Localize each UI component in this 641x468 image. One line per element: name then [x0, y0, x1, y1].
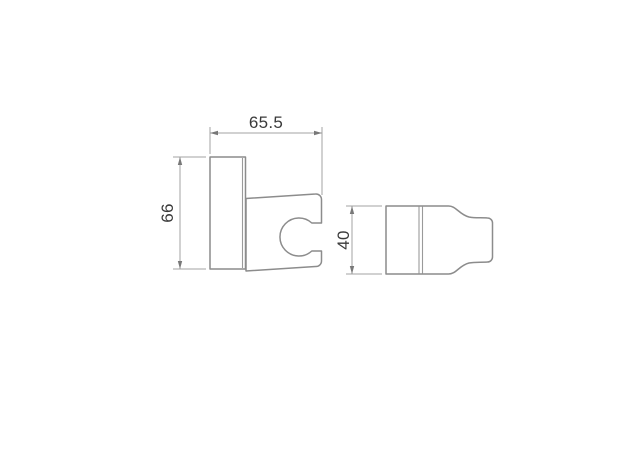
- dimension-arrow-bottom: [178, 261, 182, 269]
- front-view: [210, 157, 322, 271]
- dimension-arrow-right: [314, 131, 322, 135]
- dimension-arrow-bottom: [350, 266, 354, 274]
- dimension-depth: 40: [334, 206, 382, 274]
- dimension-depth-label: 40: [334, 230, 353, 250]
- dimension-height: 66: [158, 157, 206, 269]
- dimension-height-label: 66: [158, 203, 177, 223]
- side-profile-outline: [386, 206, 493, 274]
- dimension-width-label: 65.5: [249, 113, 283, 132]
- dimension-arrow-top: [350, 206, 354, 214]
- technical-drawing: 65.5 66 40: [0, 0, 641, 468]
- wall-plate-outline: [210, 157, 246, 269]
- cradle-bracket-outline: [246, 194, 322, 271]
- dimension-arrow-top: [178, 157, 182, 165]
- side-view: [386, 206, 493, 274]
- dimension-arrow-left: [210, 131, 218, 135]
- drawing-canvas: 65.5 66 40: [0, 0, 641, 468]
